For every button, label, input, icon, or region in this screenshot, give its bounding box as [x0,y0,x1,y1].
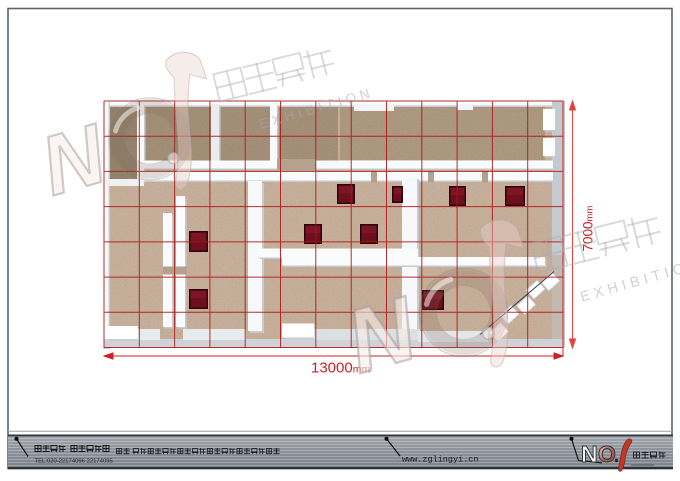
svg-text:N: N [581,441,598,467]
svg-text:TEL:020-22174096 22174095: TEL:020-22174096 22174095 [35,459,114,465]
svg-text:O: O [598,441,616,467]
svg-text:www.zglingyi.cn: www.zglingyi.cn [402,455,479,465]
